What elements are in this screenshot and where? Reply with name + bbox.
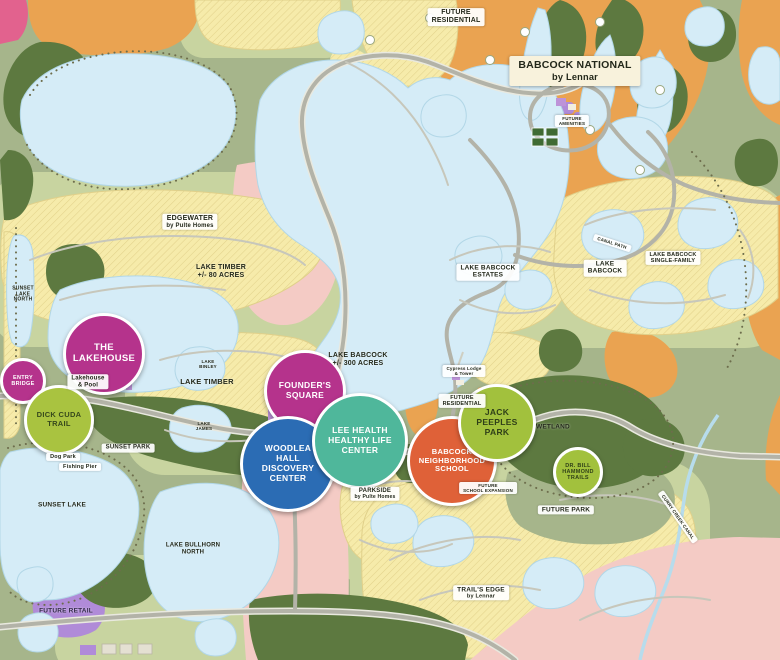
lake-babcock-single-family-label: LAKE BABCOCKSINGLE-FAMILY (645, 251, 700, 265)
future-park-label-line: FUTURE PARK (542, 506, 590, 513)
sunset-lake-north-label-line: NORTH (12, 298, 33, 304)
edgewater-label-line: EDGEWATER (166, 215, 213, 223)
lake-timber-label-line: LAKE TIMBER (180, 378, 233, 386)
edgewater-label: EDGEWATERby Pulte Homes (162, 214, 217, 230)
wetland-label: WETLAND (536, 423, 570, 430)
lake-timber-label: LAKE TIMBER (180, 378, 233, 386)
sunset-park-label: SUNSET PARK (102, 444, 155, 453)
lake-bullhorn-north-label-line: LAKE BULLHORN (166, 542, 220, 549)
trails-edge-label-line: by Lennar (457, 594, 505, 600)
lake-babcock-single-family-label-line: SINGLE-FAMILY (649, 258, 696, 264)
sunset-park-label-line: SUNSET PARK (106, 445, 151, 452)
babcock-ranch-map: ENTRYBRIDGETHELAKEHOUSEDICK CUDATRAILFOU… (0, 0, 780, 660)
lake-timber-acreage-label-line: LAKE TIMBER (196, 264, 246, 272)
wetland-label-line: WETLAND (536, 423, 570, 430)
lake-binley-label-line: BINLEY (199, 364, 217, 369)
fishing-pier-label: Fishing Pier (59, 463, 101, 471)
trails-edge-label: TRAIL'S EDGEby Lennar (453, 585, 509, 600)
future-residential-north-label-line: FUTURE (432, 9, 481, 17)
future-amenities-label: FUTUREAMENITIES (555, 115, 589, 127)
lake-babcock-acreage-label: LAKE BABCOCK+/- 300 ACRES (328, 352, 387, 368)
edgewater-label-line: by Pulte Homes (166, 223, 213, 230)
cypress-lodge-tower-label-line: & Tower (446, 371, 481, 376)
lake-binley-label: LAKEBINLEY (199, 359, 217, 369)
dr-bill-hammond-trails-badge[interactable]: DR. BILLHAMMONDTRAILS (553, 447, 603, 497)
lake-babcock-estates-label: LAKE BABCOCKESTATES (456, 264, 519, 281)
babcock-neighborhood-school-badge-line: SCHOOL (435, 465, 469, 474)
babcock-national-label-line: BABCOCK NATIONAL (518, 60, 631, 72)
jack-peeples-park-badge-line: PARK (485, 428, 510, 438)
lake-bullhorn-north-label: LAKE BULLHORNNORTH (166, 542, 220, 555)
lee-health-healthy-life-center-badge[interactable]: LEE HEALTHHEALTHY LIFECENTER (312, 393, 408, 489)
dick-cuda-trail-badge-line: TRAIL (47, 420, 71, 429)
lake-babcock-neighborhood-label: LAKEBABCOCK (584, 260, 627, 277)
future-residential-mid-label-line: RESIDENTIAL (443, 401, 482, 407)
dick-cuda-trail-badge[interactable]: DICK CUDATRAIL (24, 385, 94, 455)
lake-timber-acreage-label-line: +/- 80 ACRES (196, 272, 246, 280)
dr-bill-hammond-trails-badge-line: TRAILS (567, 475, 589, 481)
future-retail-label: FUTURE RETAIL (39, 607, 93, 614)
future-school-expansion-label-line: SCHOOL EXPANSION (463, 488, 513, 493)
lee-health-healthy-life-center-badge-line: CENTER (342, 446, 379, 456)
parkside-label: PARKSIDEby Pulte Homes (350, 487, 399, 501)
dog-park-label-line: Dog Park (50, 454, 76, 460)
lake-babcock-acreage-label-line: +/- 300 ACRES (328, 360, 387, 368)
future-school-expansion-label: FUTURESCHOOL EXPANSION (459, 482, 517, 494)
sunset-lake-label-line: SUNSET LAKE (38, 501, 86, 508)
future-residential-north-label: FUTURERESIDENTIAL (428, 8, 485, 26)
parkside-label-line: by Pulte Homes (354, 495, 395, 501)
cypress-lodge-tower-label: Cypress Lodge& Tower (442, 365, 485, 377)
lake-bullhorn-north-label-line: NORTH (166, 549, 220, 556)
woodlea-hall-discovery-center-badge-line: CENTER (270, 474, 307, 484)
lake-babcock-estates-label-line: LAKE BABCOCK (460, 265, 515, 272)
lakehouse-and-pool-label: Lakehouse& Pool (67, 374, 108, 389)
lake-babcock-neighborhood-label-line: BABCOCK (588, 268, 623, 275)
lake-james-label: LAKEJAMES (196, 421, 213, 431)
future-residential-mid-label: FUTURERESIDENTIAL (439, 394, 486, 408)
lake-babcock-estates-label-line: ESTATES (460, 272, 515, 279)
sunset-lake-label: SUNSET LAKE (38, 501, 86, 508)
lake-timber-acreage-label: LAKE TIMBER+/- 80 ACRES (196, 264, 246, 280)
lakehouse-and-pool-label-line: Lakehouse (71, 375, 104, 382)
future-amenities-label-line: AMENITIES (559, 121, 585, 126)
babcock-national-label-line: by Lennar (518, 72, 631, 82)
lake-babcock-neighborhood-label-line: LAKE (588, 261, 623, 268)
future-residential-north-label-line: RESIDENTIAL (432, 17, 481, 25)
babcock-national-label: BABCOCK NATIONALby Lennar (509, 56, 640, 86)
fishing-pier-label-line: Fishing Pier (63, 464, 97, 470)
future-retail-label-line: FUTURE RETAIL (39, 607, 93, 614)
lake-james-label-line: JAMES (196, 426, 213, 431)
dog-park-label: Dog Park (46, 453, 80, 461)
sunset-lake-north-label: SUNSETLAKENORTH (12, 287, 33, 304)
founders-square-badge-line: SQUARE (286, 391, 324, 401)
trails-edge-label-line: TRAIL'S EDGE (457, 586, 505, 593)
lake-babcock-acreage-label-line: LAKE BABCOCK (328, 352, 387, 360)
lakehouse-and-pool-label-line: & Pool (71, 382, 104, 389)
future-park-label: FUTURE PARK (538, 505, 594, 514)
entry-bridge-badge-line: BRIDGE (11, 381, 34, 387)
the-lakehouse-badge-line: LAKEHOUSE (73, 354, 135, 365)
